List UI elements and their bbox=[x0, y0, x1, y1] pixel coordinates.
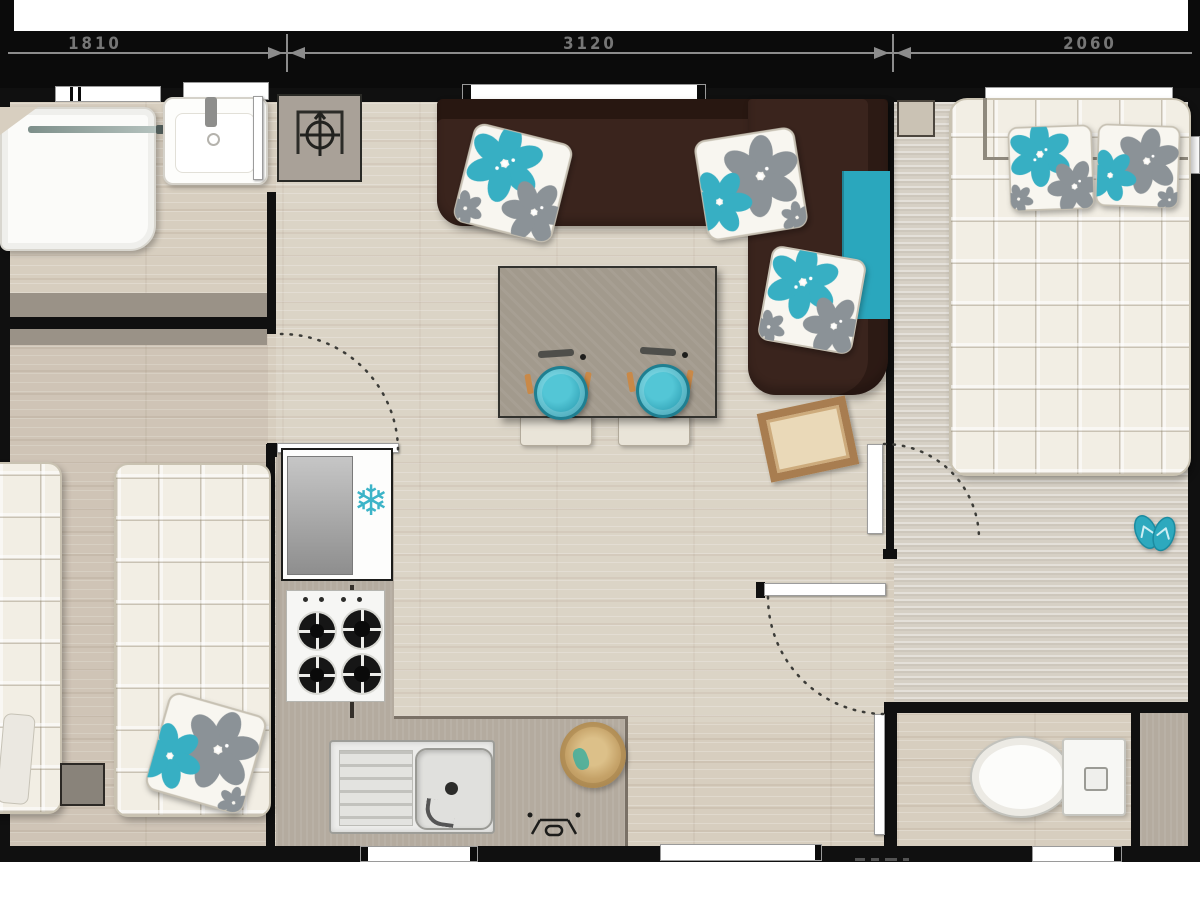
bathroom-wall bbox=[0, 317, 272, 329]
dimension-label-middle: 3120 bbox=[528, 33, 652, 54]
window-mullion bbox=[78, 87, 81, 101]
utensil-dot bbox=[682, 352, 688, 358]
utensil-icon bbox=[640, 347, 676, 356]
wc-left-wall bbox=[884, 702, 897, 846]
floor-plan: 1810 3120 2060 bbox=[0, 0, 1200, 900]
dimension-tick bbox=[892, 34, 894, 72]
crosshair-icon bbox=[288, 102, 352, 166]
wall-end-cap bbox=[883, 549, 897, 559]
top-left-corner bbox=[0, 0, 14, 31]
boiler-cabinet bbox=[277, 94, 362, 182]
wc-top-wall bbox=[884, 702, 1190, 713]
window-bathroom bbox=[55, 86, 161, 102]
place-setting bbox=[524, 348, 592, 436]
fridge: ❄ bbox=[281, 448, 393, 581]
bathroom-side-wall bbox=[267, 192, 276, 334]
headboard-line bbox=[983, 98, 987, 160]
door-leaf-wc-open bbox=[764, 583, 886, 596]
step-icon bbox=[524, 810, 584, 840]
drainboard bbox=[339, 750, 413, 826]
stove-knob bbox=[319, 597, 324, 602]
plate bbox=[534, 366, 588, 420]
burner bbox=[343, 610, 381, 648]
fridge-door bbox=[287, 456, 353, 575]
burner bbox=[299, 657, 335, 693]
drain-icon bbox=[445, 782, 458, 795]
burner bbox=[343, 655, 381, 693]
door-hinge bbox=[267, 443, 277, 457]
nightstand bbox=[60, 763, 105, 806]
dimension-arrow-icon bbox=[896, 47, 911, 59]
plate bbox=[636, 364, 690, 418]
kitchen-sink bbox=[329, 740, 495, 834]
toilet-bowl bbox=[970, 736, 1072, 818]
wc-side-floor bbox=[1140, 713, 1188, 846]
stove-knob bbox=[303, 597, 308, 602]
floral-pillow bbox=[1093, 116, 1182, 217]
wc-divider-wall bbox=[1131, 713, 1140, 846]
toilet-tank bbox=[1062, 738, 1126, 816]
snowflake-icon: ❄ bbox=[349, 480, 393, 522]
dimension-arrow-icon bbox=[874, 47, 889, 59]
window-wc bbox=[1032, 846, 1122, 862]
counter-edge bbox=[625, 719, 628, 846]
cutlery-icon bbox=[626, 372, 635, 393]
dimension-label-left: 1810 bbox=[35, 33, 155, 54]
floral-pillow bbox=[1005, 118, 1096, 217]
dimension-arrow-icon bbox=[268, 47, 283, 59]
flush-button bbox=[1084, 767, 1108, 791]
window-kitchen bbox=[360, 846, 478, 862]
straw-hat bbox=[560, 722, 626, 788]
floral-pillow bbox=[754, 242, 870, 358]
outer-wall-bottom bbox=[8, 846, 1192, 862]
window-mullion bbox=[70, 87, 73, 101]
burner bbox=[299, 613, 335, 649]
drain-icon bbox=[207, 133, 220, 146]
dimension-tick bbox=[286, 34, 288, 72]
grab-bar bbox=[28, 126, 162, 133]
stove bbox=[286, 590, 385, 702]
cutlery-icon bbox=[524, 374, 533, 395]
hat-band bbox=[571, 746, 592, 771]
door-leaf-bedroom-right bbox=[867, 444, 883, 534]
utensil-icon bbox=[538, 349, 574, 358]
door-leaf-wc bbox=[874, 714, 885, 835]
watermark bbox=[855, 856, 935, 864]
dimension-band: 1810 3120 2060 bbox=[0, 31, 1200, 88]
flip-flops bbox=[1126, 502, 1182, 562]
place-setting bbox=[626, 346, 694, 434]
floral-pillow bbox=[690, 123, 811, 244]
top-right-corner bbox=[1188, 0, 1200, 31]
window-hall bbox=[660, 844, 822, 861]
dimension-label-right: 2060 bbox=[1028, 33, 1152, 54]
door-leaf-bathroom bbox=[253, 96, 263, 180]
utensil-dot bbox=[580, 354, 586, 360]
faucet-icon bbox=[205, 97, 217, 127]
stove-knob bbox=[341, 597, 346, 602]
counter-edge bbox=[394, 716, 628, 719]
dimension-arrow-icon bbox=[290, 47, 305, 59]
stove-knob bbox=[357, 597, 362, 602]
nightstand bbox=[897, 100, 935, 137]
